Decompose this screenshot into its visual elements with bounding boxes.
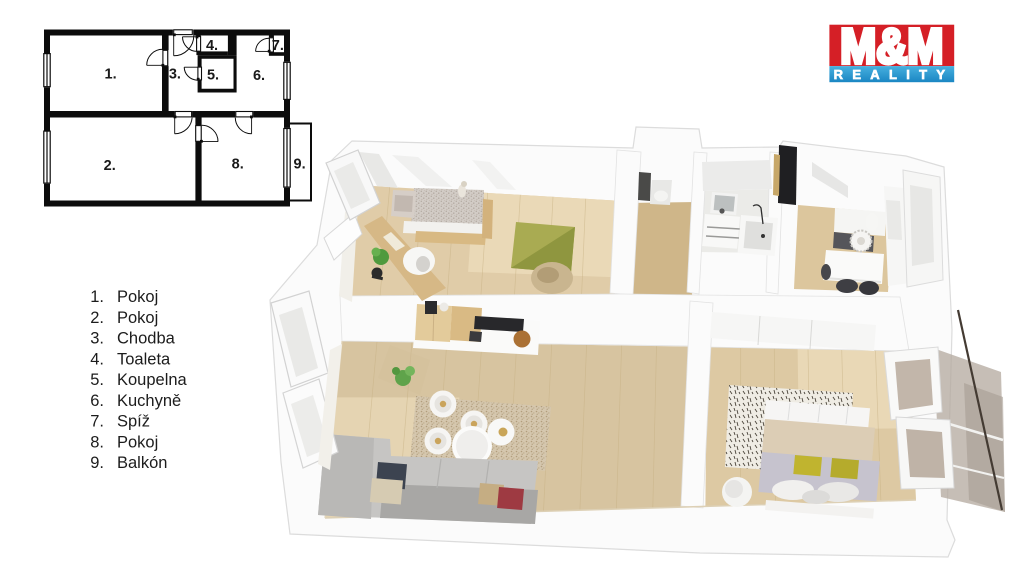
svg-text:7.: 7. xyxy=(90,413,104,431)
svg-text:7.: 7. xyxy=(272,38,284,54)
svg-text:2.: 2. xyxy=(104,158,116,174)
svg-text:6.: 6. xyxy=(90,392,104,410)
svg-text:2.: 2. xyxy=(90,309,104,327)
svg-text:Pokoj: Pokoj xyxy=(117,309,158,327)
svg-text:4.: 4. xyxy=(206,38,218,54)
svg-text:3.: 3. xyxy=(90,330,104,348)
svg-text:Pokoj: Pokoj xyxy=(117,288,158,306)
svg-text:8.: 8. xyxy=(90,433,104,451)
svg-text:5.: 5. xyxy=(207,68,219,84)
svg-text:Spíž: Spíž xyxy=(117,413,150,431)
svg-text:1.: 1. xyxy=(90,288,104,306)
svg-text:Koupelna: Koupelna xyxy=(117,371,188,389)
svg-text:Pokoj: Pokoj xyxy=(117,433,158,451)
svg-text:Toaleta: Toaleta xyxy=(117,350,171,368)
svg-text:9.: 9. xyxy=(90,454,104,472)
svg-text:4.: 4. xyxy=(90,350,104,368)
svg-text:5.: 5. xyxy=(90,371,104,389)
svg-text:6.: 6. xyxy=(253,68,265,84)
svg-text:9.: 9. xyxy=(294,157,306,173)
svg-text:M&M: M&M xyxy=(840,20,943,74)
svg-text:3.: 3. xyxy=(169,67,181,83)
svg-text:Chodba: Chodba xyxy=(117,330,176,348)
svg-text:Balkón: Balkón xyxy=(117,454,167,472)
svg-text:1.: 1. xyxy=(105,67,117,83)
svg-text:REALITY: REALITY xyxy=(834,67,955,82)
svg-text:8.: 8. xyxy=(232,157,244,173)
svg-text:Kuchyně: Kuchyně xyxy=(117,392,181,410)
